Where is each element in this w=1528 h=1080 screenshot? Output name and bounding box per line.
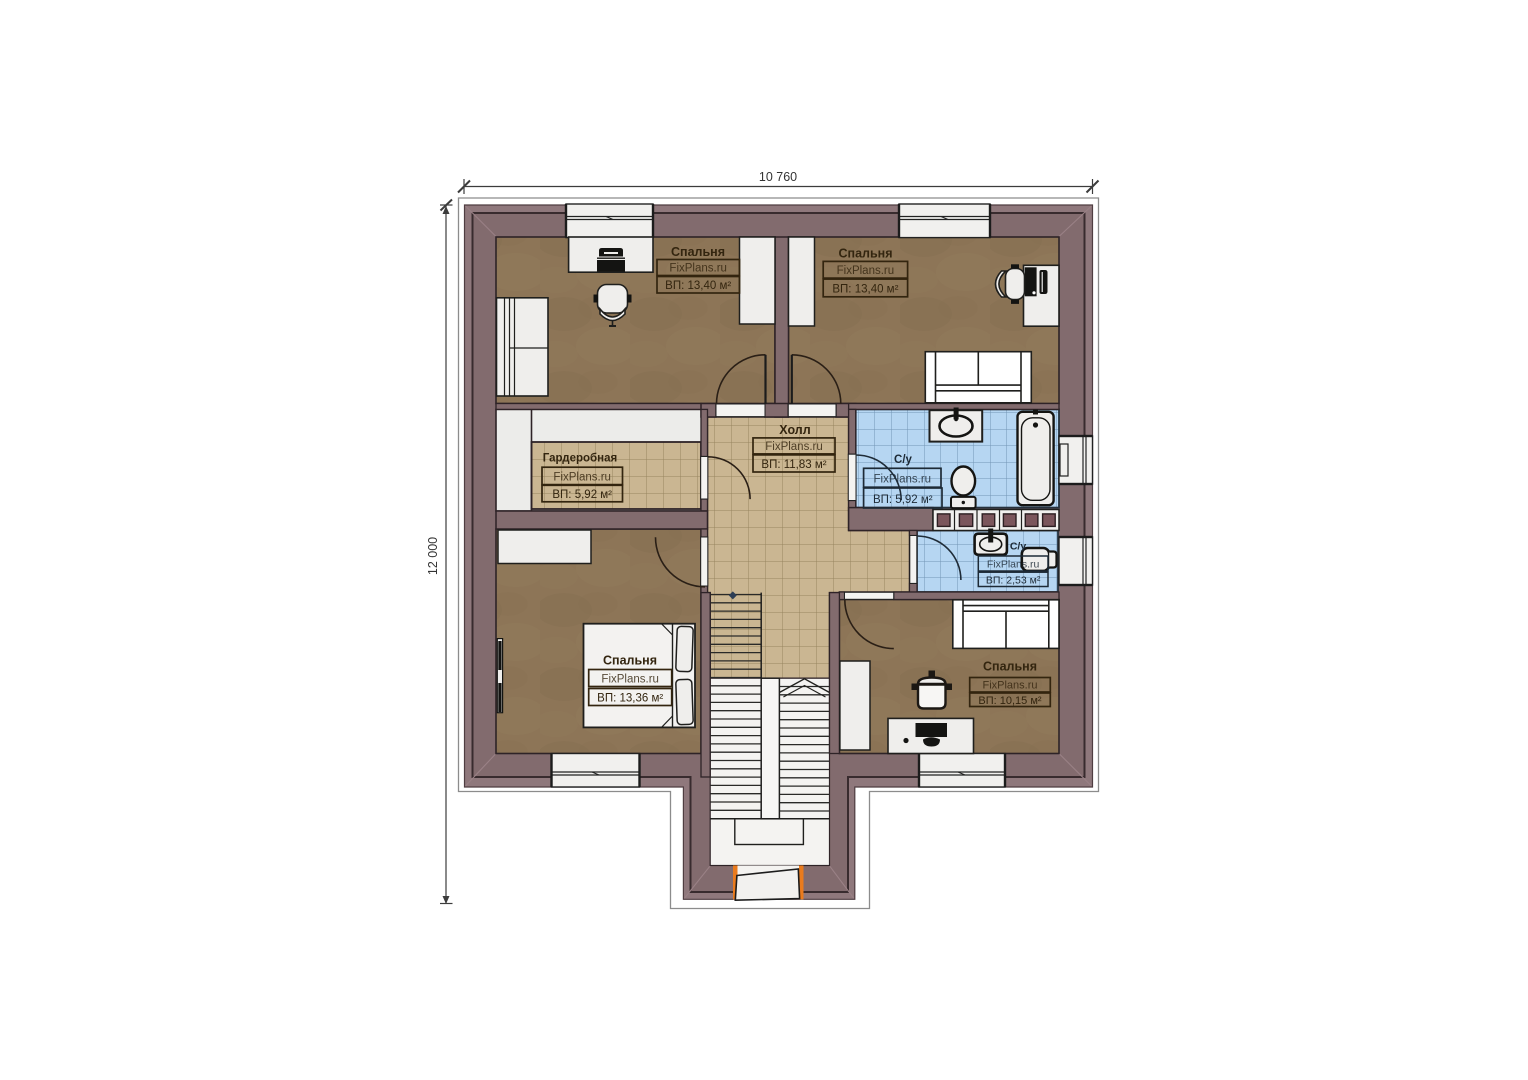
svg-text:ВП: 5,92 м²: ВП: 5,92 м² [552, 489, 612, 501]
svg-text:Холл: Холл [779, 423, 810, 437]
svg-text:Гардеробная: Гардеробная [543, 453, 617, 465]
svg-text:ВП: 13,40 м²: ВП: 13,40 м² [665, 280, 731, 292]
svg-text:Спальня: Спальня [983, 660, 1037, 674]
svg-text:ВП: 13,36 м²: ВП: 13,36 м² [597, 693, 663, 705]
svg-text:С/у: С/у [894, 454, 913, 466]
svg-text:ВП: 13,40 м²: ВП: 13,40 м² [832, 283, 898, 295]
svg-text:FixPlans.ru: FixPlans.ru [669, 263, 727, 275]
svg-text:12 000: 12 000 [426, 537, 440, 575]
svg-text:С/у: С/у [1010, 541, 1027, 553]
svg-text:FixPlans.ru: FixPlans.ru [837, 265, 895, 277]
svg-text:FixPlans.ru: FixPlans.ru [765, 441, 823, 453]
svg-text:FixPlans.ru: FixPlans.ru [987, 558, 1040, 570]
svg-text:FixPlans.ru: FixPlans.ru [553, 472, 611, 484]
svg-text:FixPlans.ru: FixPlans.ru [874, 473, 932, 485]
svg-text:FixPlans.ru: FixPlans.ru [982, 680, 1037, 692]
svg-text:ВП: 5,92 м²: ВП: 5,92 м² [873, 494, 933, 506]
svg-text:Спальня: Спальня [839, 247, 893, 261]
svg-text:ВП: 2,53 м²: ВП: 2,53 м² [986, 574, 1041, 586]
svg-text:Спальня: Спальня [671, 245, 725, 259]
svg-text:Спальня: Спальня [603, 654, 657, 668]
svg-text:ВП: 11,83 м²: ВП: 11,83 м² [761, 459, 826, 471]
svg-text:FixPlans.ru: FixPlans.ru [601, 674, 659, 686]
svg-text:10 760: 10 760 [759, 170, 797, 184]
svg-text:ВП: 10,15 м²: ВП: 10,15 м² [978, 695, 1042, 707]
